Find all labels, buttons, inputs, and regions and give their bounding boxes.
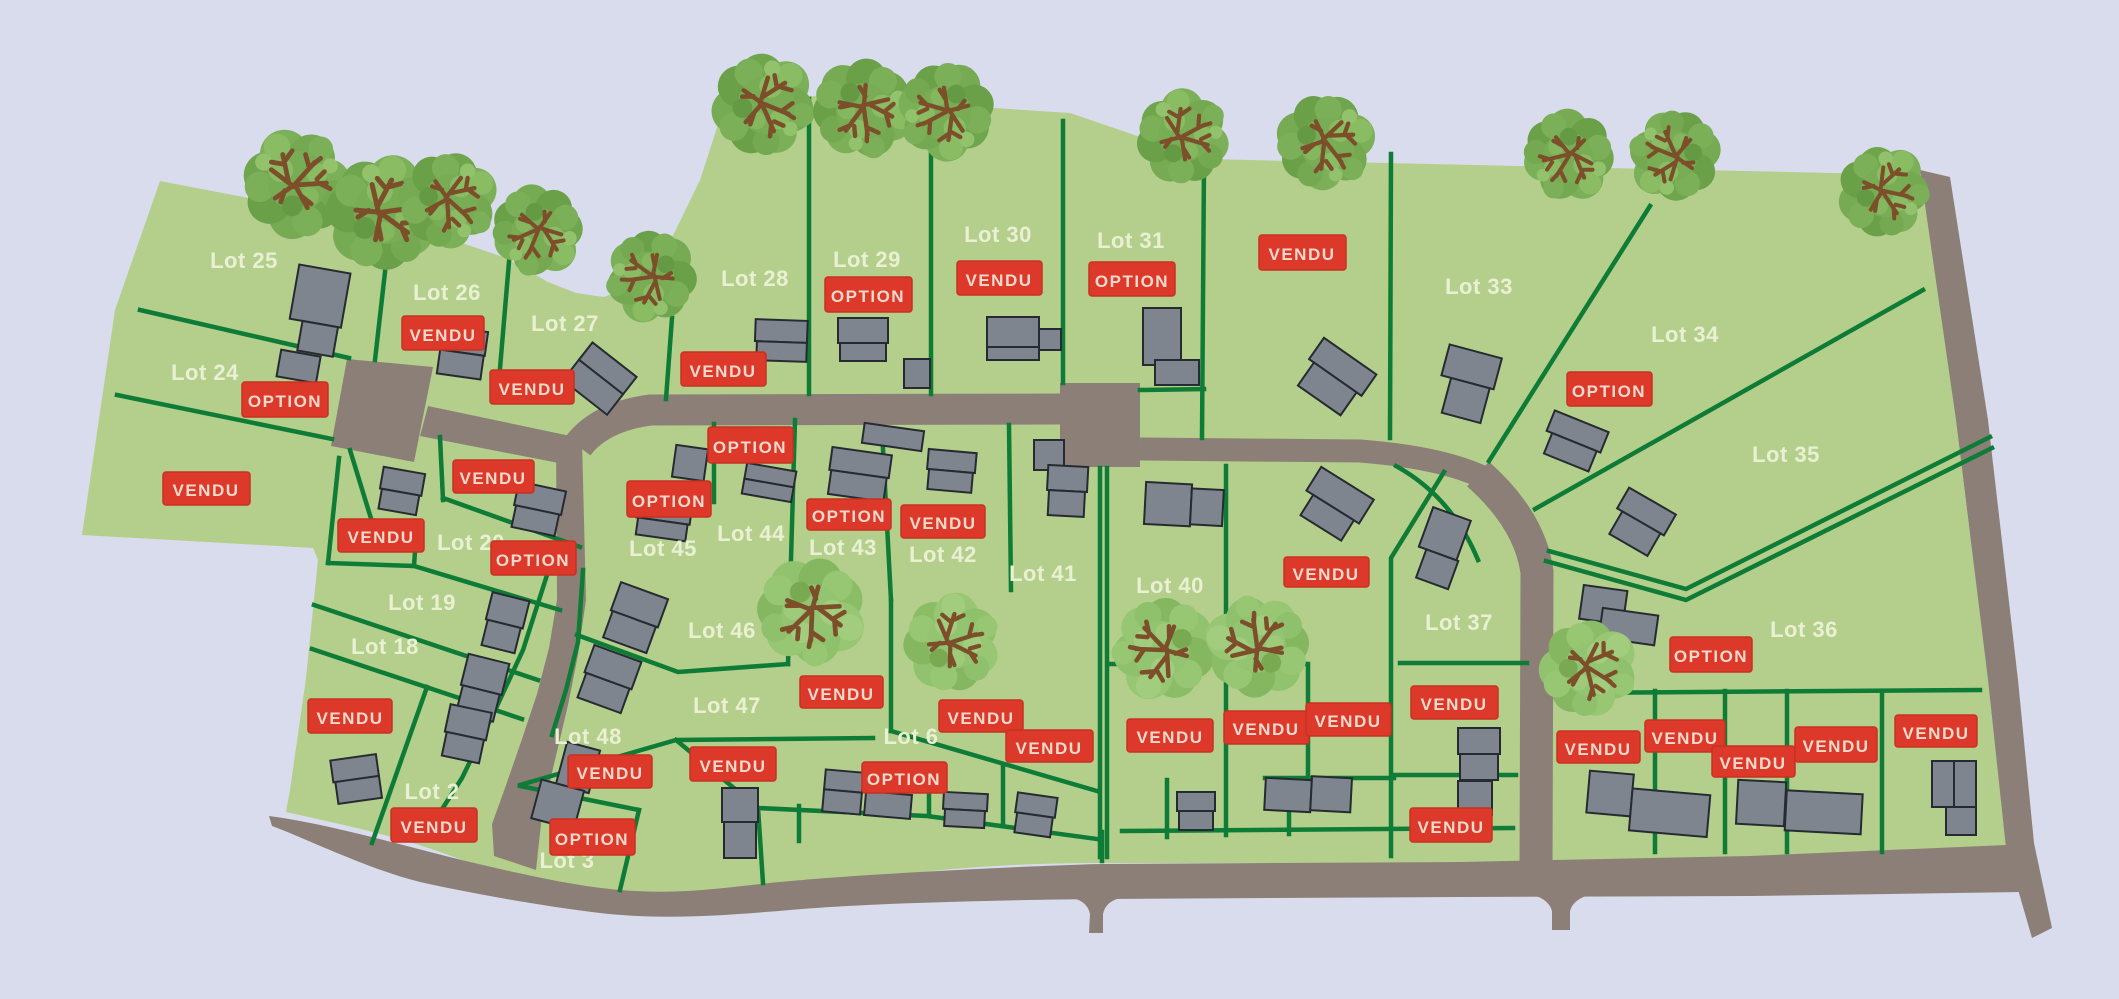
svg-text:VENDU: VENDU (409, 326, 476, 345)
svg-text:VENDU: VENDU (1802, 737, 1869, 756)
svg-text:Lot 2: Lot 2 (404, 779, 459, 804)
svg-text:Lot 35: Lot 35 (1752, 442, 1820, 467)
svg-text:VENDU: VENDU (400, 818, 467, 837)
svg-text:VENDU: VENDU (965, 271, 1032, 290)
svg-text:Lot 42: Lot 42 (909, 542, 977, 567)
svg-text:Lot 18: Lot 18 (351, 634, 419, 659)
svg-text:VENDU: VENDU (347, 528, 414, 547)
svg-text:OPTION: OPTION (812, 507, 886, 526)
svg-text:VENDU: VENDU (1232, 720, 1299, 739)
svg-text:Lot 40: Lot 40 (1136, 573, 1204, 598)
svg-text:Lot 24: Lot 24 (171, 360, 239, 385)
svg-text:VENDU: VENDU (1015, 739, 1082, 758)
svg-text:VENDU: VENDU (1902, 724, 1969, 743)
svg-text:VENDU: VENDU (1292, 565, 1359, 584)
svg-text:VENDU: VENDU (1268, 245, 1335, 264)
svg-text:VENDU: VENDU (576, 764, 643, 783)
svg-text:VENDU: VENDU (498, 380, 565, 399)
svg-text:VENDU: VENDU (1719, 754, 1786, 773)
svg-text:VENDU: VENDU (459, 469, 526, 488)
svg-text:VENDU: VENDU (1651, 729, 1718, 748)
svg-text:Lot 41: Lot 41 (1009, 561, 1077, 586)
svg-text:Lot 34: Lot 34 (1651, 322, 1719, 347)
svg-text:OPTION: OPTION (831, 287, 905, 306)
svg-text:OPTION: OPTION (713, 438, 787, 457)
svg-text:VENDU: VENDU (1136, 728, 1203, 747)
svg-text:VENDU: VENDU (909, 514, 976, 533)
svg-text:VENDU: VENDU (1417, 818, 1484, 837)
svg-text:OPTION: OPTION (867, 770, 941, 789)
svg-text:Lot 37: Lot 37 (1425, 610, 1493, 635)
svg-text:VENDU: VENDU (947, 709, 1014, 728)
svg-text:Lot 31: Lot 31 (1097, 228, 1165, 253)
svg-text:OPTION: OPTION (555, 830, 629, 849)
svg-text:Lot 27: Lot 27 (531, 311, 599, 336)
svg-text:Lot 19: Lot 19 (388, 590, 456, 615)
svg-text:Lot 46: Lot 46 (688, 618, 756, 643)
svg-text:Lot 28: Lot 28 (721, 266, 789, 291)
svg-text:Lot 47: Lot 47 (693, 693, 761, 718)
svg-text:Lot 36: Lot 36 (1770, 617, 1838, 642)
svg-text:VENDU: VENDU (699, 757, 766, 776)
svg-text:Lot 29: Lot 29 (833, 247, 901, 272)
svg-text:Lot 26: Lot 26 (413, 280, 481, 305)
svg-text:Lot 43: Lot 43 (809, 535, 877, 560)
svg-text:Lot 45: Lot 45 (629, 536, 697, 561)
svg-text:VENDU: VENDU (316, 709, 383, 728)
svg-text:OPTION: OPTION (632, 492, 706, 511)
svg-text:OPTION: OPTION (1572, 382, 1646, 401)
svg-text:Lot 48: Lot 48 (554, 724, 622, 749)
svg-text:OPTION: OPTION (496, 551, 570, 570)
svg-text:Lot 30: Lot 30 (964, 222, 1032, 247)
svg-text:VENDU: VENDU (1420, 695, 1487, 714)
svg-text:OPTION: OPTION (248, 392, 322, 411)
svg-text:Lot 6: Lot 6 (883, 724, 938, 749)
svg-text:VENDU: VENDU (172, 481, 239, 500)
svg-text:VENDU: VENDU (1314, 712, 1381, 731)
svg-text:Lot 44: Lot 44 (717, 521, 785, 546)
svg-text:VENDU: VENDU (1564, 740, 1631, 759)
svg-text:VENDU: VENDU (689, 362, 756, 381)
svg-text:Lot 25: Lot 25 (210, 248, 278, 273)
svg-text:Lot 33: Lot 33 (1445, 274, 1513, 299)
svg-text:OPTION: OPTION (1674, 647, 1748, 666)
svg-text:OPTION: OPTION (1095, 272, 1169, 291)
svg-text:VENDU: VENDU (807, 685, 874, 704)
